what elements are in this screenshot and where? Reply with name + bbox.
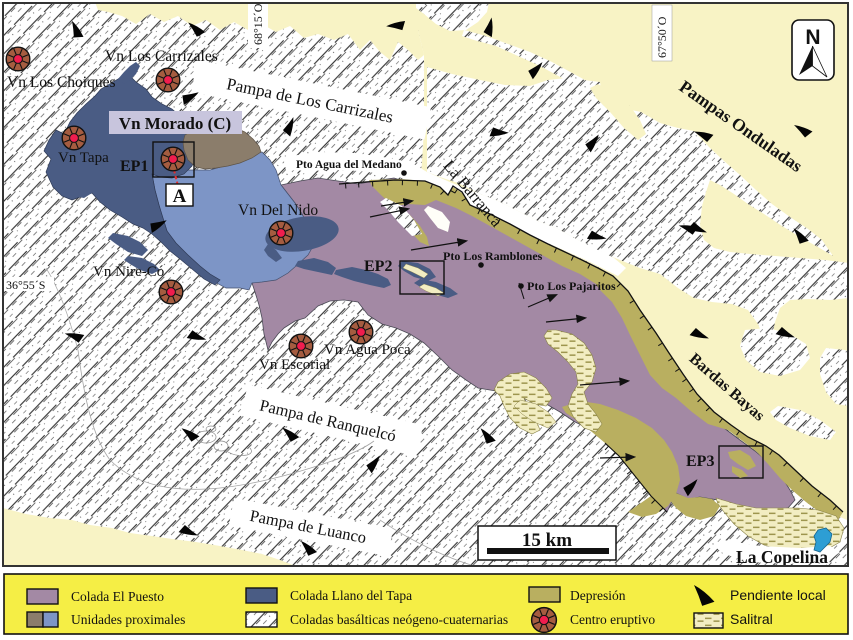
svg-text:Pto Los Pajaritos: Pto Los Pajaritos: [527, 279, 616, 293]
svg-text:Vn Los Carrizales: Vn Los Carrizales: [105, 48, 218, 65]
svg-text:Vn Los Choiques: Vn Los Choiques: [7, 74, 116, 91]
svg-text:Depresión: Depresión: [570, 588, 626, 603]
svg-text:15 km: 15 km: [522, 530, 572, 551]
svg-text:Vn Agua Poca: Vn Agua Poca: [324, 342, 411, 358]
svg-text:Centro eruptivo: Centro eruptivo: [570, 612, 655, 627]
svg-text:Vn Morado (C): Vn Morado (C): [119, 114, 231, 133]
svg-text:EP1: EP1: [120, 158, 148, 175]
svg-text:A: A: [173, 186, 187, 207]
svg-text:Coladas basálticas neógeno-cua: Coladas basálticas neógeno-cuaternarias: [290, 612, 508, 627]
svg-text:67°50´O: 67°50´O: [655, 16, 669, 58]
svg-text:Pto Agua del Medano: Pto Agua del Medano: [296, 159, 402, 171]
svg-text:68°15´O: 68°15´O: [251, 3, 265, 45]
svg-text:EP2: EP2: [364, 258, 392, 275]
svg-text:Vn Escorial: Vn Escorial: [259, 357, 330, 373]
svg-text:Salitral: Salitral: [730, 611, 773, 627]
svg-text:Vn Ñire-Có: Vn Ñire-Có: [93, 264, 164, 280]
svg-text:N: N: [805, 26, 820, 49]
svg-text:Vn Tapa: Vn Tapa: [58, 150, 109, 166]
svg-text:Colada Llano del Tapa: Colada Llano del Tapa: [290, 588, 412, 603]
svg-text:Unidades proximales: Unidades proximales: [71, 612, 185, 627]
svg-text:EP3: EP3: [686, 453, 714, 470]
svg-text:Colada El Puesto: Colada El Puesto: [71, 589, 164, 604]
svg-text:Pendiente local: Pendiente local: [730, 587, 826, 603]
svg-text:Vn Del Nido: Vn Del Nido: [238, 202, 318, 219]
svg-text:Pto Los Ramblones: Pto Los Ramblones: [443, 249, 543, 263]
svg-text:36°55´S: 36°55´S: [6, 278, 45, 292]
